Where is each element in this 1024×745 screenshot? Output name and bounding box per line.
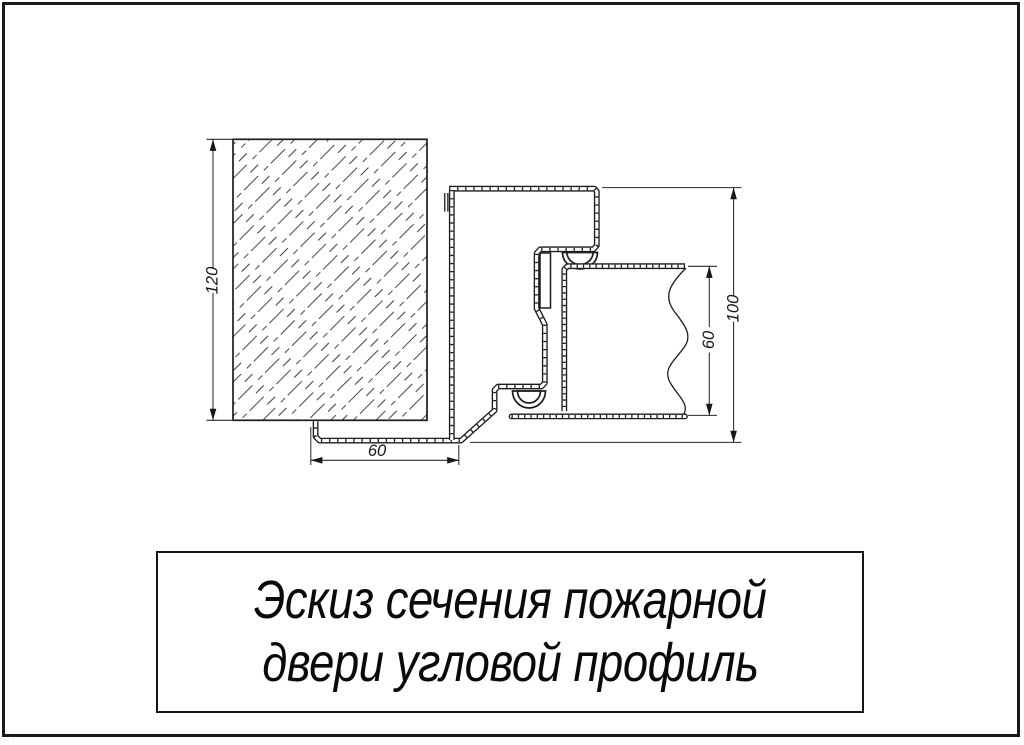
page: 120 100 60 60 Эскиз сечения пожарно bbox=[0, 0, 1024, 745]
dim-bottom-flange-width: 60 bbox=[368, 442, 387, 460]
stray-artifact: ◦◦ ˡ bbox=[3, 736, 55, 744]
title-line-1: Эскиз сечения пожарной bbox=[254, 569, 767, 632]
dim-frame-depth: 100 bbox=[725, 294, 743, 322]
dim-door-leaf-thickness: 60 bbox=[700, 330, 718, 349]
dim-wall-height: 120 bbox=[204, 266, 222, 294]
lower-gasket bbox=[513, 391, 546, 408]
intumescent-tape bbox=[540, 253, 551, 308]
break-line bbox=[668, 268, 688, 414]
title-line-2: двери угловой профиль bbox=[262, 632, 758, 695]
title-block: Эскиз сечения пожарной двери угловой про… bbox=[156, 551, 864, 713]
wall-section bbox=[233, 139, 427, 420]
